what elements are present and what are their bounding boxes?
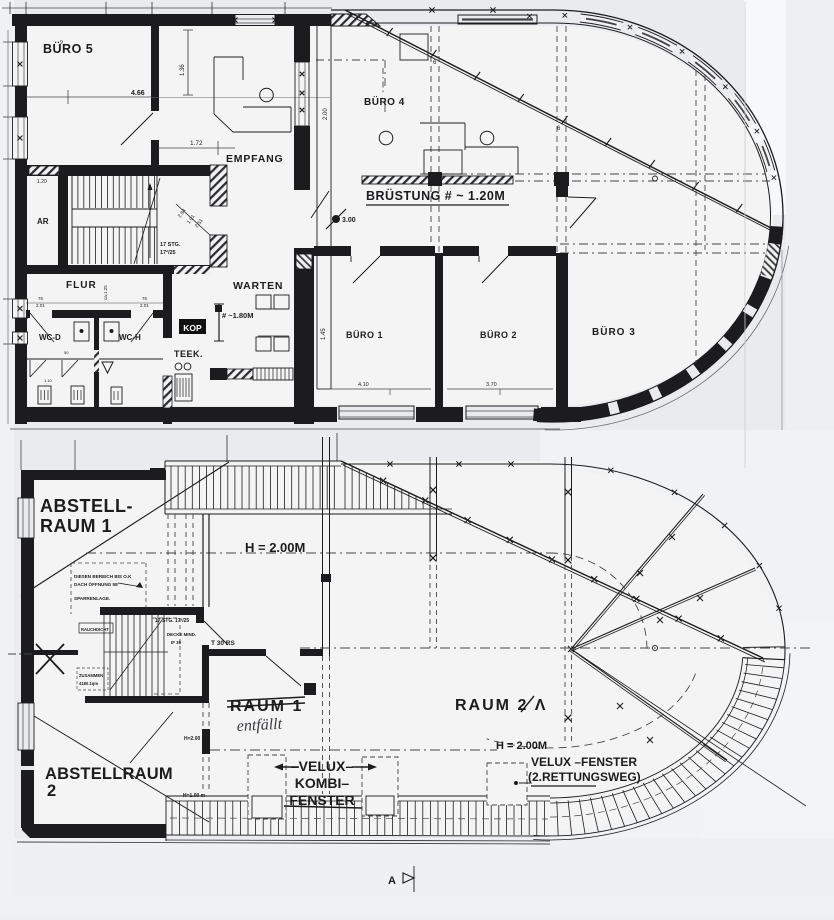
svg-text:1.36: 1.36 [180,64,186,76]
svg-text:1.72: 1.72 [190,140,203,147]
svg-text:WC-H: WC-H [119,333,141,342]
svg-text:1.20: 1.20 [37,179,47,185]
svg-text:# ~1.80M: # ~1.80M [222,311,253,320]
svg-text:TEEK.: TEEK. [174,349,203,359]
svg-text:SPARRENLAGE.: SPARRENLAGE. [74,596,110,601]
svg-text:KOP: KOP [183,323,202,333]
svg-text:RAUM 1: RAUM 1 [40,516,112,536]
svg-text:ABSTELL-: ABSTELL- [40,496,133,516]
svg-text:17 STG.: 17 STG. [160,242,181,248]
svg-text:BÜRO 3: BÜRO 3 [592,325,636,338]
svg-text:WC-D: WC-D [39,333,61,342]
svg-text:ZUSAMMEN: ZUSAMMEN [79,673,103,678]
svg-text:4.10: 4.10 [358,382,369,388]
svg-text:H=2.00: H=2.00 [184,736,200,742]
svg-text:BÜRO 4: BÜRO 4 [364,95,405,108]
svg-text:2: 2 [47,782,56,800]
svg-text:DECKE MIND.: DECKE MIND. [167,632,196,637]
svg-text:BÜRO 1: BÜRO 1 [346,330,383,340]
svg-text:3.00: 3.00 [342,217,356,224]
svg-text:H = 2.00M: H = 2.00M [245,540,305,555]
svg-text:H = 2.00M: H = 2.00M [496,740,547,752]
svg-text:76: 76 [142,296,148,301]
svg-text:VELUX –FENSTER: VELUX –FENSTER [531,755,637,769]
svg-text:RAUM 2 Λ: RAUM 2 Λ [455,697,547,714]
svg-text:H=1.00 m: H=1.00 m [183,793,206,799]
svg-text:17 STG. 17²/25: 17 STG. 17²/25 [155,618,189,624]
svg-text:BÜRO 2: BÜRO 2 [480,330,517,340]
svg-text:AR: AR [37,217,49,226]
svg-text:T 30 RS: T 30 RS [211,640,236,647]
svg-text:1.45: 1.45 [321,328,327,340]
svg-text:KOMBI–: KOMBI– [295,775,350,791]
svg-text:RAUCHDICHT: RAUCHDICHT [81,627,109,632]
svg-text:DIESEN BEREICH BIS O.K: DIESEN BEREICH BIS O.K [74,574,132,579]
svg-text:BRÜSTUNG # ~ 1.20M: BRÜSTUNG # ~ 1.20M [366,188,505,203]
svg-text:9: 9 [60,40,63,46]
svg-text:FLUR: FLUR [66,280,97,291]
svg-text:2.01: 2.01 [36,303,45,308]
svg-text:ca.1.25: ca.1.25 [103,285,108,300]
svg-text:76: 76 [38,296,44,301]
svg-text:4180.1qm: 4180.1qm [79,681,98,686]
svg-text:FENSTER: FENSTER [289,792,354,808]
svg-text:IF 30: IF 30 [171,640,182,645]
svg-text:entfällt: entfällt [236,716,283,735]
svg-text:17²/25: 17²/25 [160,249,176,256]
svg-text:1.10: 1.10 [44,378,53,383]
svg-text:3.70: 3.70 [486,382,497,388]
svg-text:4.66: 4.66 [131,90,145,97]
svg-text:BÜRO 5: BÜRO 5 [43,41,93,56]
svg-text:2.01: 2.01 [140,303,149,308]
svg-text:2.00: 2.00 [323,108,329,120]
svg-text:(2.RETTUNGSWEG): (2.RETTUNGSWEG) [528,770,641,784]
svg-text:EMPFANG: EMPFANG [226,153,284,165]
svg-text:–VELUX–: –VELUX– [291,758,353,774]
svg-text:A: A [388,875,396,887]
svg-text:WARTEN: WARTEN [233,280,283,292]
svg-text:ABSTELLRAUM: ABSTELLRAUM [45,765,173,783]
svg-text:50: 50 [64,350,69,355]
svg-text:DACH ÖFFNUNG 58: DACH ÖFFNUNG 58 [74,581,118,587]
